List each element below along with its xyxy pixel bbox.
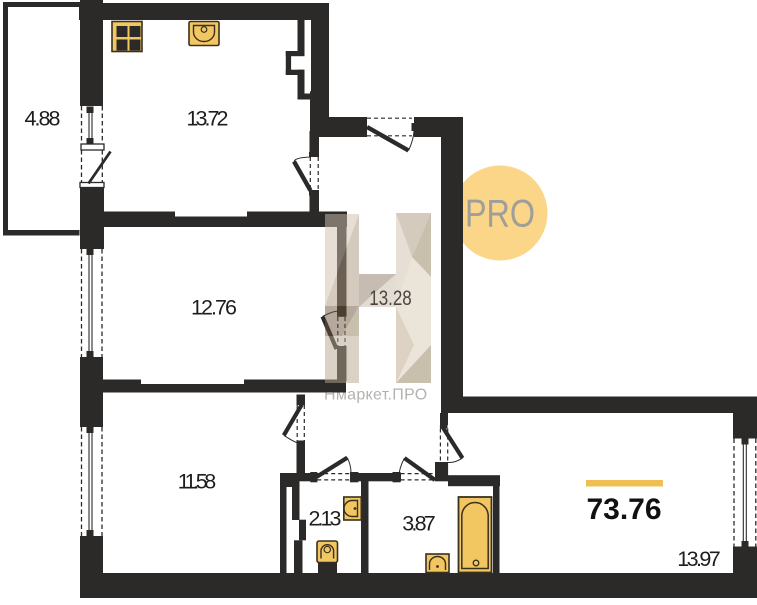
svg-text:12.76: 12.76 (191, 296, 237, 320)
svg-text:13.97: 13.97 (677, 547, 721, 571)
svg-text:11.58: 11.58 (178, 470, 217, 494)
svg-text:2.13: 2.13 (309, 507, 342, 531)
svg-text:73.76: 73.76 (586, 493, 661, 526)
svg-text:PRO: PRO (465, 192, 535, 235)
svg-text:13.28: 13.28 (369, 286, 412, 310)
svg-text:4.88: 4.88 (25, 107, 61, 131)
svg-text:13.72: 13.72 (187, 107, 229, 131)
svg-text:3.87: 3.87 (402, 512, 436, 536)
